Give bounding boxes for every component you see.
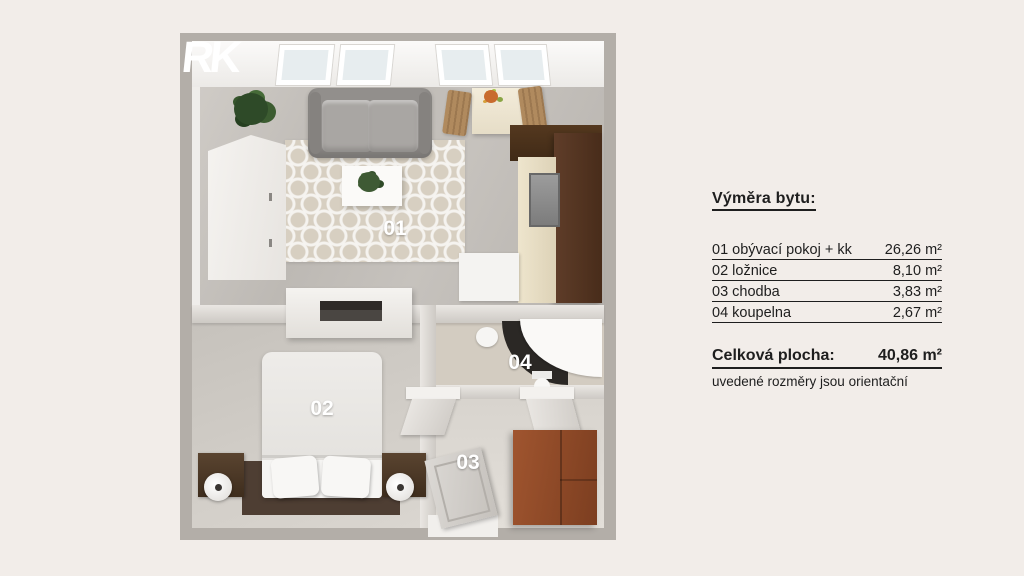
room-label-03: 03 xyxy=(456,451,479,475)
pillow xyxy=(270,455,319,499)
room-label-01: 01 xyxy=(383,217,406,241)
table-plant xyxy=(358,172,380,192)
window-pane xyxy=(336,45,394,85)
sink xyxy=(476,327,498,347)
room-name: 04 koupelna xyxy=(712,305,791,321)
room-area: 2,67 m² xyxy=(893,305,942,321)
lamp-top xyxy=(397,484,404,491)
door-threshold xyxy=(520,387,574,399)
pillow xyxy=(321,455,372,498)
corner-plant xyxy=(234,93,268,125)
white-wardrobe xyxy=(208,135,286,280)
stove xyxy=(529,173,560,227)
wardrobe-handle xyxy=(269,239,272,247)
sofa-cushion xyxy=(322,100,372,152)
room-area: 26,26 m² xyxy=(885,242,942,258)
window-pane xyxy=(276,45,334,85)
legend-row: 03 chodba 3,83 m² xyxy=(712,281,942,302)
total-area: 40,86 m² xyxy=(878,347,942,365)
room-name: 03 chodba xyxy=(712,284,780,300)
flower-vase xyxy=(484,90,498,103)
legend-total: Celková plocha: 40,86 m² xyxy=(712,347,942,369)
legend-table: 01 obývací pokoj + kk 26,26 m² 02 ložnic… xyxy=(712,239,942,323)
room-area: 3,83 m² xyxy=(893,284,942,300)
room-area: 8,10 m² xyxy=(893,263,942,279)
window-group-left xyxy=(276,45,394,85)
lamp-top xyxy=(215,484,222,491)
floorplan: 01 02 03 04 RK xyxy=(180,33,616,540)
sofa-armrest xyxy=(419,92,430,154)
legend-row: 01 obývací pokoj + kk 26,26 m² xyxy=(712,239,942,260)
wardrobe-handle xyxy=(269,193,272,201)
bedside-lamp xyxy=(386,473,414,501)
room-label-02: 02 xyxy=(310,397,333,421)
room-name: 01 obývací pokoj + kk xyxy=(712,242,852,258)
fridge xyxy=(459,253,519,301)
total-label: Celková plocha: xyxy=(712,347,835,365)
window-pane xyxy=(494,45,550,85)
window-group-right xyxy=(436,45,550,85)
sofa xyxy=(308,88,432,158)
room-label-04: 04 xyxy=(508,351,531,375)
window-pane xyxy=(436,45,492,85)
legend-note: uvedené rozměry jsou orientační xyxy=(712,374,942,389)
wardrobe-seam xyxy=(560,479,597,481)
door-threshold xyxy=(406,387,460,399)
bedside-lamp xyxy=(204,473,232,501)
room-name: 02 ložnice xyxy=(712,263,777,279)
legend-row: 04 koupelna 2,67 m² xyxy=(712,302,942,323)
page: 01 02 03 04 RK Výměra bytu: 01 obývací p… xyxy=(0,0,1024,576)
hall-wardrobe xyxy=(513,430,597,525)
area-legend: Výměra bytu: 01 obývací pokoj + kk 26,26… xyxy=(712,190,942,389)
legend-title: Výměra bytu: xyxy=(712,190,816,211)
sofa-cushion xyxy=(368,100,418,152)
legend-row: 02 ložnice 8,10 m² xyxy=(712,260,942,281)
kitchen-tall-cabinet xyxy=(554,133,602,303)
sofa-armrest xyxy=(310,92,321,154)
laptop xyxy=(320,301,382,321)
wardrobe-seam xyxy=(560,430,562,525)
rk-logo: RK xyxy=(179,33,240,83)
